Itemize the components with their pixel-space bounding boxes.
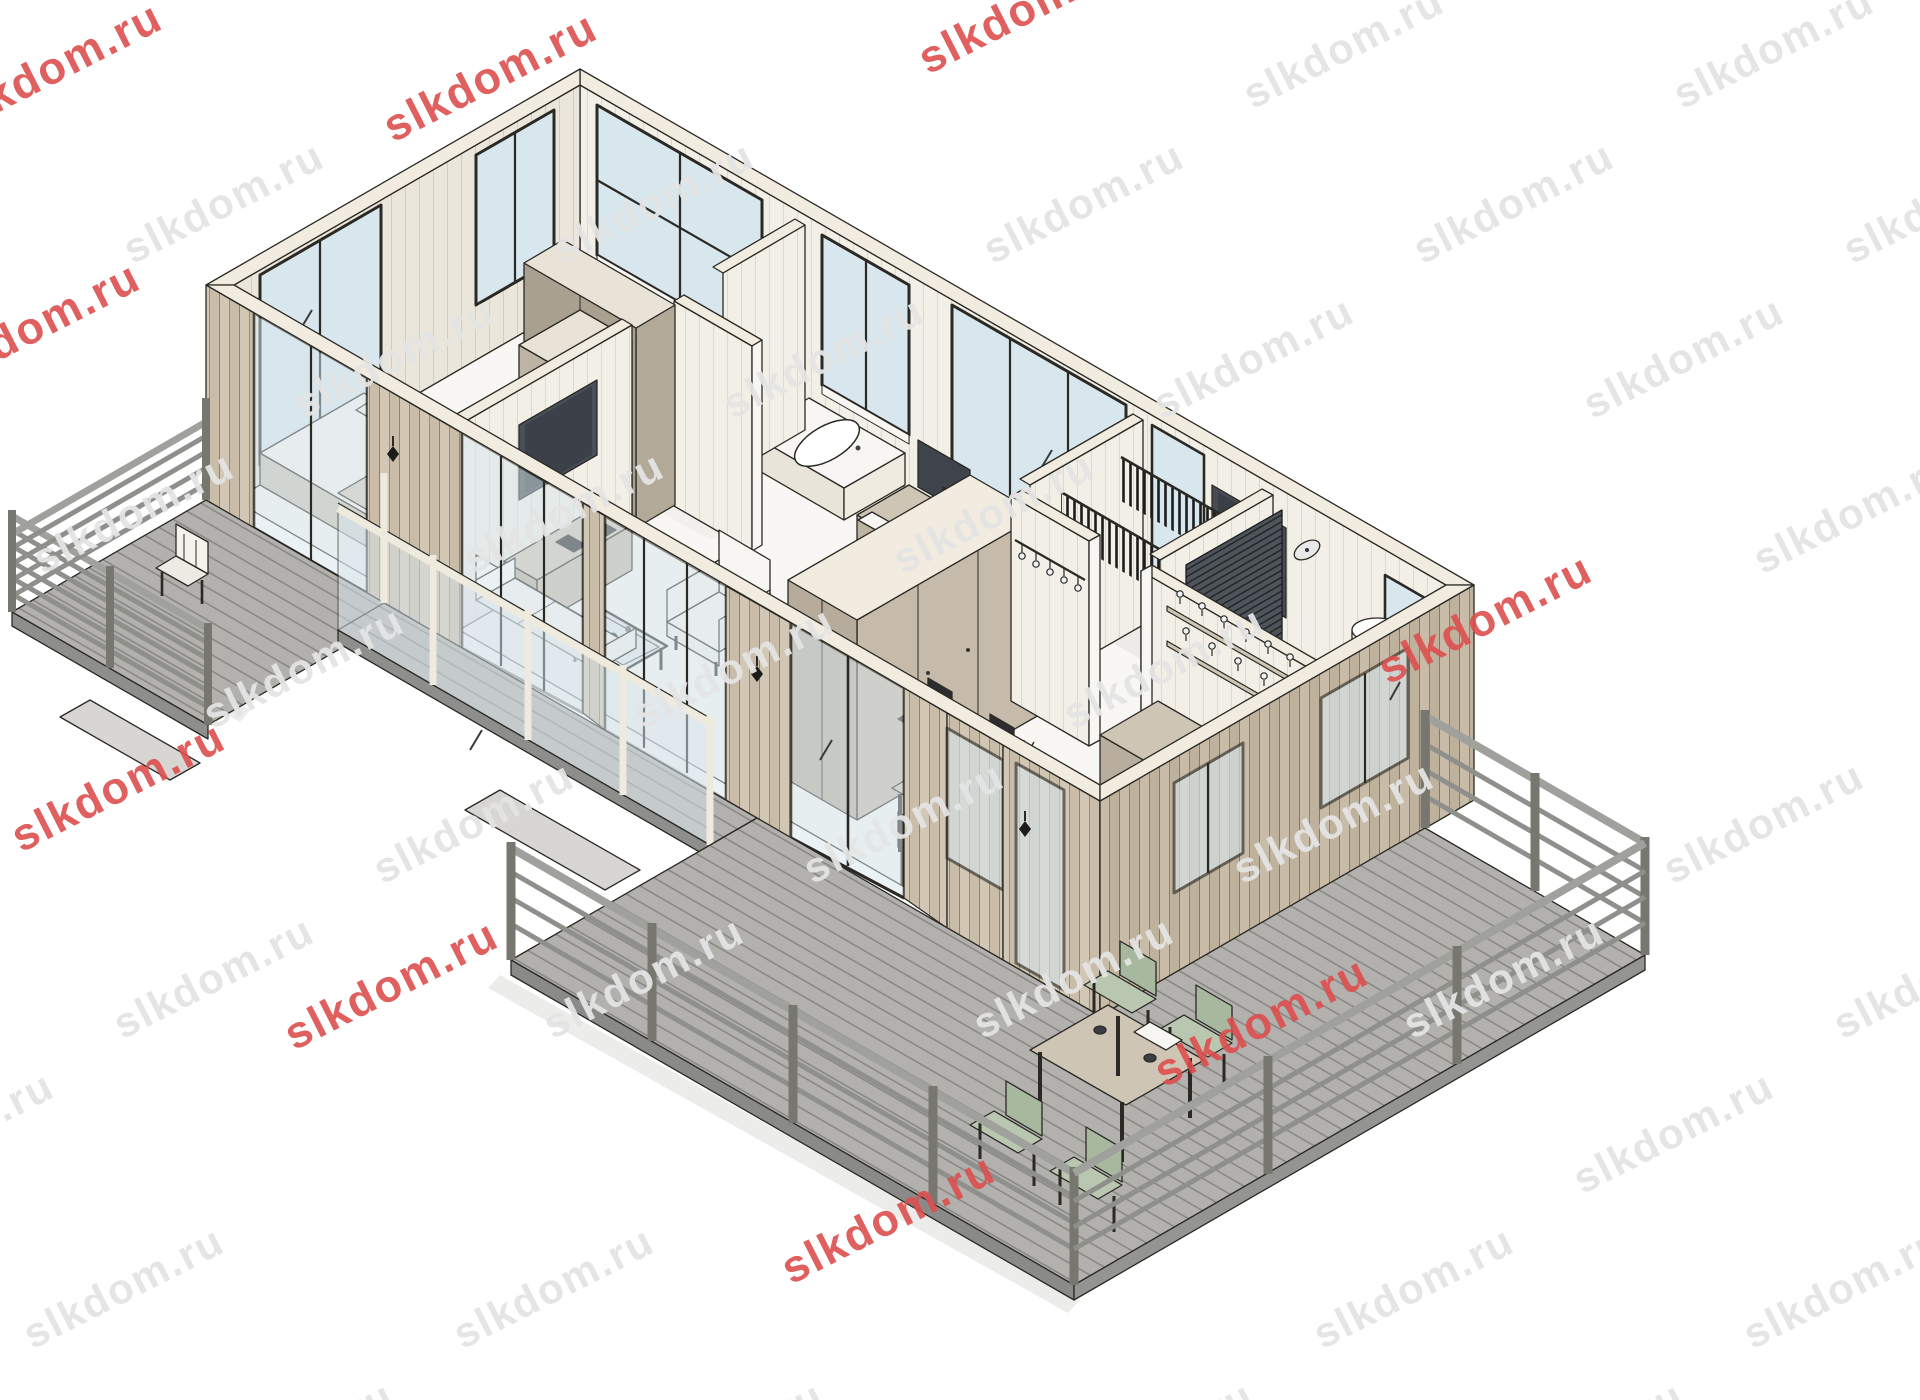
watermark-text-gray: slkdom.ru (1665, 0, 1881, 118)
floor-plan-stage: slkdom.ruslkdom.ruslkdom.ruslkdom.ruslkd… (0, 0, 1920, 1400)
watermark-text-gray: slkdom.ru (1745, 441, 1920, 582)
watermark-text-gray: slkdom.ru (185, 1371, 401, 1400)
watermark-text-gray: slkdom.ru (1475, 1371, 1691, 1400)
watermark-text-gray: slkdom.ru (1655, 751, 1871, 892)
floor-plan-render: slkdom.ruslkdom.ruslkdom.ruslkdom.ruslkd… (0, 0, 1920, 1400)
watermark-text-gray: slkdom.ru (1405, 131, 1621, 272)
watermark-text-gray: slkdom.ru (1835, 131, 1920, 272)
watermark-text-gray: slkdom.ru (445, 1216, 661, 1357)
watermark-text-red: slkdom.ru (0, 0, 170, 142)
watermark-text-gray: slkdom.ru (615, 1371, 831, 1400)
watermark-text-gray: slkdom.ru (15, 1216, 231, 1357)
watermark-text-gray: slkdom.ru (1825, 906, 1920, 1047)
watermark-text-gray: slkdom.ru (1735, 1216, 1920, 1357)
watermark-text-gray: slkdom.ru (1905, 1371, 1920, 1400)
watermark-text-red: slkdom.ru (0, 251, 148, 402)
watermark-text-gray: slkdom.ru (1145, 286, 1361, 427)
watermark-text-gray: slkdom.ru (1235, 0, 1451, 118)
cup (1094, 1026, 1106, 1034)
partition-bathroom-south (674, 295, 762, 551)
watermark-text-gray: slkdom.ru (1565, 1061, 1781, 1202)
watermark-text-gray: slkdom.ru (1305, 1216, 1521, 1357)
watermark-text-gray: slkdom.ru (0, 1061, 62, 1202)
watermark-text-gray: slkdom.ru (1575, 286, 1791, 427)
tub-faucet (856, 446, 861, 451)
kitchen-sw-window-wall (947, 713, 1003, 960)
watermark-text-gray: slkdom.ru (975, 131, 1191, 272)
watermark-text-gray: slkdom.ru (1045, 1371, 1261, 1400)
watermark-text-red: slkdom.ru (910, 0, 1141, 84)
